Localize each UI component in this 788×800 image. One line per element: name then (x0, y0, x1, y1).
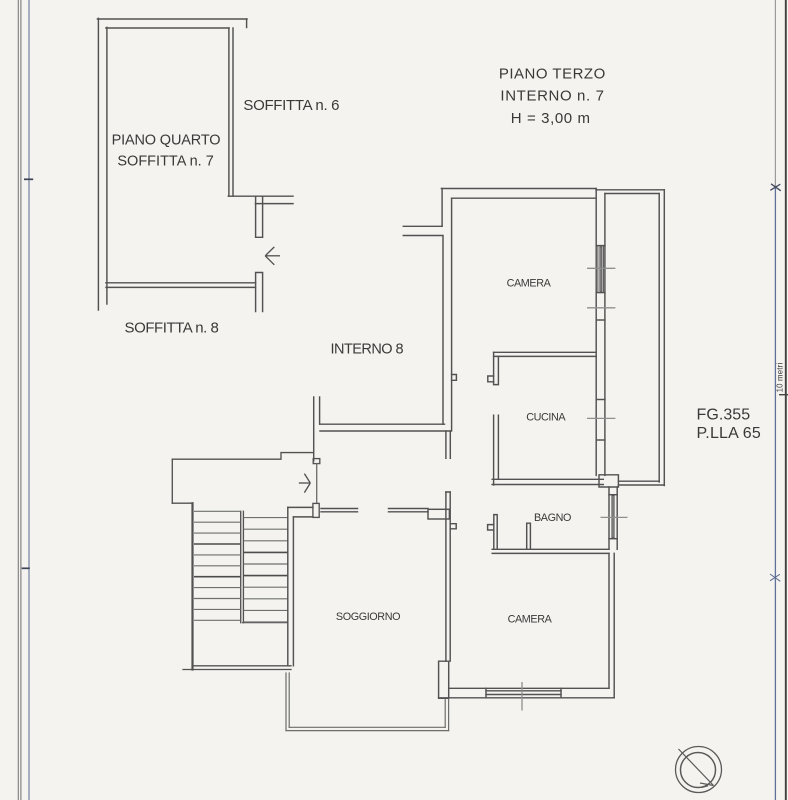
svg-text:INTERNO 8: INTERNO 8 (331, 342, 404, 358)
svg-text:SOFFITTA n. 7: SOFFITTA n. 7 (117, 154, 213, 170)
svg-text:SOGGIORNO: SOGGIORNO (336, 611, 400, 623)
svg-text:BAGNO: BAGNO (534, 512, 571, 524)
svg-text:SOFFITTA n. 8: SOFFITTA n. 8 (125, 320, 219, 337)
svg-text:INTERNO n. 7: INTERNO n. 7 (500, 88, 604, 105)
svg-text:SOFFITTA n. 6: SOFFITTA n. 6 (243, 97, 339, 114)
svg-text:PIANO QUARTO: PIANO QUARTO (112, 133, 221, 149)
svg-text:10 metri: 10 metri (775, 363, 784, 393)
svg-text:CAMERA: CAMERA (508, 614, 553, 626)
svg-text:PIANO TERZO: PIANO TERZO (499, 65, 606, 82)
svg-text:CUCINA: CUCINA (526, 412, 566, 424)
svg-text:CAMERA: CAMERA (507, 277, 552, 289)
svg-text:H = 3,00 m: H = 3,00 m (511, 110, 591, 127)
svg-text:P.LLA 65: P.LLA 65 (697, 425, 761, 442)
svg-text:FG.355: FG.355 (697, 406, 751, 423)
